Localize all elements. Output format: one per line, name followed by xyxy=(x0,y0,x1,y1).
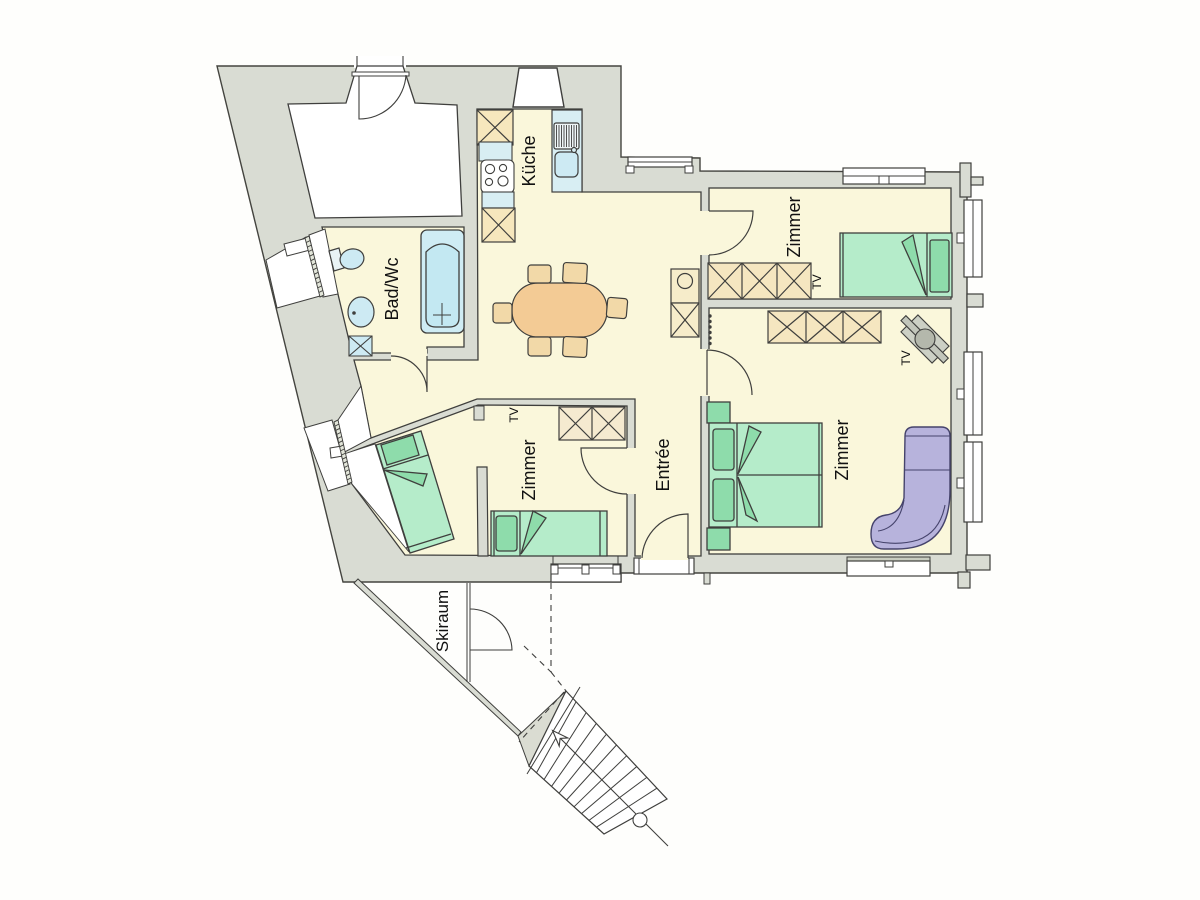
svg-text:TV: TV xyxy=(899,350,913,365)
svg-text:Entrée: Entrée xyxy=(653,438,673,491)
svg-text:TV: TV xyxy=(507,407,521,422)
svg-text:Zimmer: Zimmer xyxy=(832,420,852,481)
svg-text:Bad/Wc: Bad/Wc xyxy=(382,257,402,320)
svg-text:Zimmer: Zimmer xyxy=(784,197,804,258)
svg-text:Zimmer: Zimmer xyxy=(519,440,539,501)
svg-text:Küche: Küche xyxy=(519,135,539,186)
svg-text:TV: TV xyxy=(810,274,824,289)
svg-text:Skiraum: Skiraum xyxy=(433,590,452,652)
